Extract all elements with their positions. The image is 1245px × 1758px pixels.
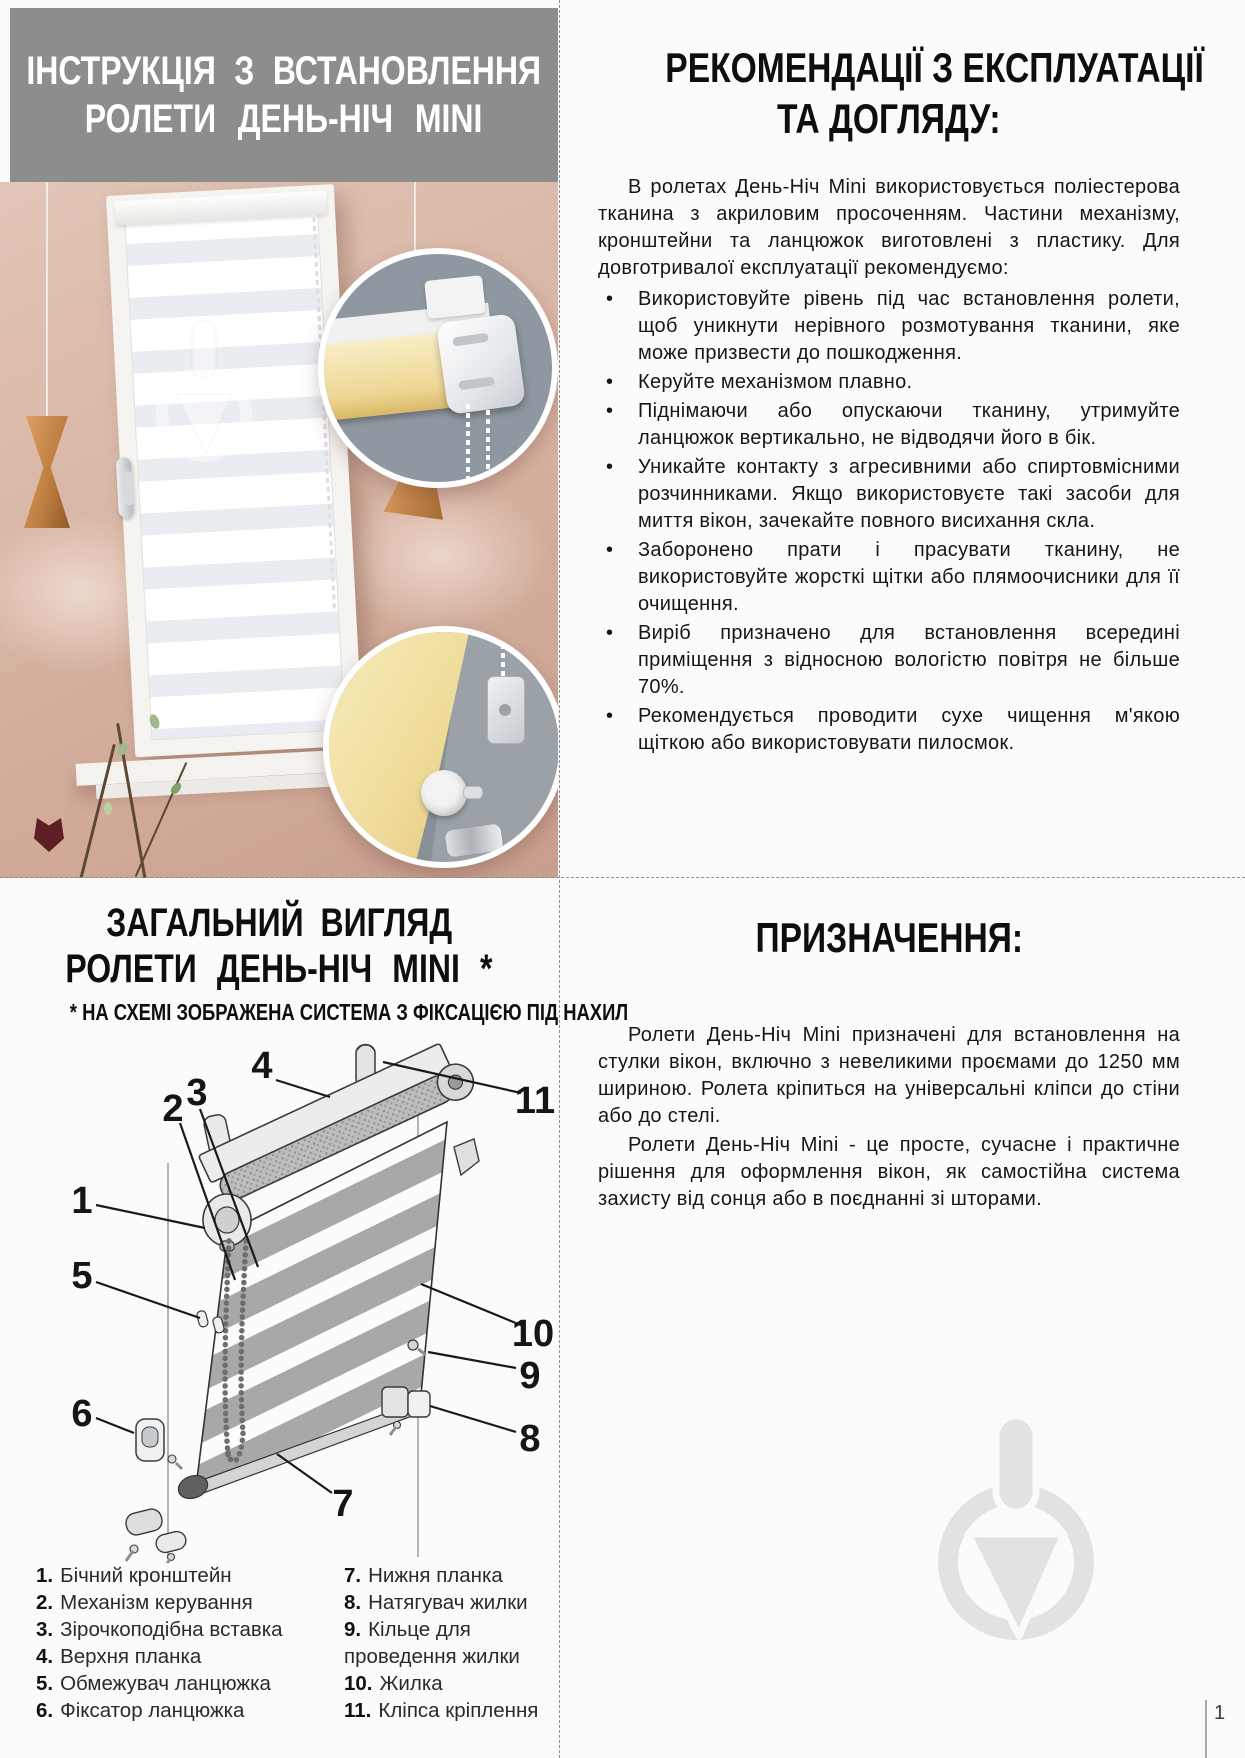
callout-3: 3	[186, 1072, 207, 1114]
legend-item: 4.Верхня планка	[36, 1643, 336, 1670]
legend-num: 6.	[36, 1699, 53, 1722]
legend-num: 2.	[36, 1591, 53, 1614]
inset-guide-pin	[463, 786, 483, 799]
page-number: 1	[1214, 1702, 1225, 1725]
legend-num: 3.	[36, 1618, 53, 1641]
chain-fixator-part	[136, 1419, 182, 1469]
legend-label: Нижня планка	[368, 1564, 503, 1587]
window-handle-plate	[122, 471, 134, 505]
plant-leaf	[104, 802, 112, 815]
mechanism-slot	[452, 333, 489, 347]
horizontal-dashed-divider	[0, 877, 1245, 878]
recommendations-intro: В ролетах День-Ніч Mini використовується…	[598, 174, 1180, 282]
legend-label: Верхня планка	[60, 1645, 201, 1668]
instruction-leaflet-page: ІНСТРУКЦІЯ З ВСТАНОВЛЕННЯ РОЛЕТИ ДЕНЬ-НІ…	[0, 0, 1245, 1758]
legend-item: 5.Обмежувач ланцюжка	[36, 1670, 336, 1697]
legend-item: 2.Механізм керування	[36, 1589, 336, 1616]
callout-6: 6	[71, 1393, 92, 1435]
pendant-lamp-left	[24, 416, 70, 528]
legend-column-2: 7.Нижня планка 8.Натягувач жилки 9.Кільц…	[344, 1562, 558, 1724]
legend-num: 9.	[344, 1618, 361, 1641]
callout-1: 1	[71, 1180, 92, 1222]
list-item: Уникайте контакту з агресивними або спир…	[598, 454, 1180, 535]
callout-11: 11	[515, 1080, 555, 1122]
install-title-line1: ІНСТРУКЦІЯ З ВСТАНОВЛЕННЯ	[27, 49, 542, 93]
window-blind-photo	[0, 182, 558, 878]
inset-guide-ring	[421, 770, 467, 816]
inset-chain	[486, 410, 490, 484]
legend-item: 9.Кільце для проведення жилки	[344, 1616, 558, 1670]
recommendations-heading-line2: ТА ДОГЛЯДУ:	[777, 93, 1001, 144]
list-item: Піднімаючи або опускаючи тканину, утриму…	[598, 398, 1180, 452]
cord-hardware-left	[124, 1507, 188, 1563]
legend-column-1: 1.Бічний кронштейн 2.Механізм керування …	[36, 1562, 336, 1724]
legend-num: 7.	[344, 1564, 361, 1587]
legend-label: Кільце для проведення жилки	[344, 1618, 520, 1668]
list-item: Заборонено прати і прасувати тканину, не…	[598, 537, 1180, 618]
inset-control-mechanism	[318, 248, 558, 488]
recommendations-list: Використовуйте рівень під час встановлен…	[598, 286, 1180, 757]
recommendations-section: РЕКОМЕНДАЦІЇ З ЕКСПЛУАТАЦІЇ ТА ДОГЛЯДУ: …	[598, 0, 1180, 757]
callout-4: 4	[251, 1045, 272, 1087]
list-item: Рекомендується проводити сухе чищення м'…	[598, 703, 1180, 757]
inset-yellow-fabric	[329, 632, 469, 862]
list-item: Керуйте механізмом плавно.	[598, 369, 1180, 396]
parts-legend: 1.Бічний кронштейн 2.Механізм керування …	[36, 1562, 558, 1724]
legend-num: 11.	[344, 1699, 371, 1722]
page-number-rule	[1205, 1700, 1207, 1758]
legend-num: 10.	[344, 1672, 373, 1695]
day-night-blind-fabric	[124, 201, 345, 740]
legend-item: 1.Бічний кронштейн	[36, 1562, 336, 1589]
legend-label: Натягувач жилки	[368, 1591, 528, 1614]
overview-note: * НА СХЕМІ ЗОБРАЖЕНА СИСТЕМА З ФІКСАЦІЄЮ…	[70, 999, 628, 1026]
callout-10: 10	[512, 1313, 554, 1355]
list-item: Використовуйте рівень під час встановлен…	[598, 286, 1180, 367]
assembly-diagram: 1 2 3 4 5 6 7 8 9 10 11	[30, 1035, 558, 1563]
legend-label: Зірочкоподібна вставка	[60, 1618, 282, 1641]
legend-item: 7.Нижня планка	[344, 1562, 558, 1589]
inset-tensioner-screw	[499, 704, 511, 716]
inset-chain-weight	[443, 822, 504, 859]
trowel-logo-watermark	[926, 1410, 1106, 1660]
inset-chain	[466, 404, 470, 484]
legend-label: Кліпса кріплення	[378, 1699, 538, 1722]
legend-num: 5.	[36, 1672, 53, 1695]
overview-heading-line1: ЗАГАЛЬНИЙ ВИГЛЯД	[106, 900, 452, 946]
install-title-line2: РОЛЕТИ ДЕНЬ-НІЧ MINI	[85, 97, 483, 141]
install-header-band: ІНСТРУКЦІЯ З ВСТАНОВЛЕННЯ РОЛЕТИ ДЕНЬ-НІ…	[10, 8, 558, 182]
end-bracket-part	[454, 1139, 479, 1175]
overview-section-heading: ЗАГАЛЬНИЙ ВИГЛЯД РОЛЕТИ ДЕНЬ-НІЧ MINI * …	[0, 878, 558, 1025]
purpose-paragraph-1: Ролети День-Ніч Mini призначені для вста…	[598, 1022, 1180, 1130]
callout-7: 7	[332, 1483, 353, 1525]
legend-label: Жилка	[380, 1672, 443, 1695]
legend-num: 8.	[344, 1591, 361, 1614]
legend-label: Обмежувач ланцюжка	[60, 1672, 271, 1695]
callout-2: 2	[162, 1088, 183, 1130]
legend-num: 4.	[36, 1645, 53, 1668]
inset-control-unit	[436, 313, 526, 415]
vertical-dashed-divider	[559, 0, 560, 1758]
purpose-heading: ПРИЗНАЧЕННЯ:	[755, 914, 1023, 962]
legend-item: 10.Жилка	[344, 1670, 558, 1697]
trowel-logo-watermark	[148, 316, 260, 468]
legend-num: 1.	[36, 1564, 53, 1587]
legend-label: Фіксатор ланцюжка	[60, 1699, 244, 1722]
inset-chain-tensioner	[323, 626, 558, 868]
legend-item: 3.Зірочкоподібна вставка	[36, 1616, 336, 1643]
callout-5: 5	[71, 1255, 92, 1297]
callout-9: 9	[519, 1355, 540, 1397]
legend-label: Механізм керування	[60, 1591, 253, 1614]
purpose-section: ПРИЗНАЧЕННЯ: Ролети День-Ніч Mini призна…	[598, 878, 1180, 1213]
mechanism-slot	[458, 376, 495, 390]
tulip-flower	[34, 818, 64, 852]
purpose-paragraph-2: Ролети День-Ніч Mini - це просте, сучасн…	[598, 1132, 1180, 1213]
legend-item: 8.Натягувач жилки	[344, 1589, 558, 1616]
window-frame	[106, 184, 363, 757]
lamp-wire	[46, 182, 48, 418]
overview-heading-line2: РОЛЕТИ ДЕНЬ-НІЧ MINI *	[65, 946, 492, 992]
callout-8: 8	[519, 1418, 540, 1460]
legend-item: 6.Фіксатор ланцюжка	[36, 1697, 336, 1724]
inset-bracket-tab	[424, 275, 486, 319]
plant-leaf	[115, 741, 130, 758]
list-item: Виріб призначено для встановлення всеред…	[598, 620, 1180, 701]
legend-label: Бічний кронштейн	[60, 1564, 231, 1587]
inset-chain	[501, 626, 505, 678]
recommendations-heading-line1: РЕКОМЕНДАЦІЇ З ЕКСПЛУАТАЦІЇ	[665, 42, 1203, 93]
legend-item: 11.Кліпса кріплення	[344, 1697, 558, 1724]
